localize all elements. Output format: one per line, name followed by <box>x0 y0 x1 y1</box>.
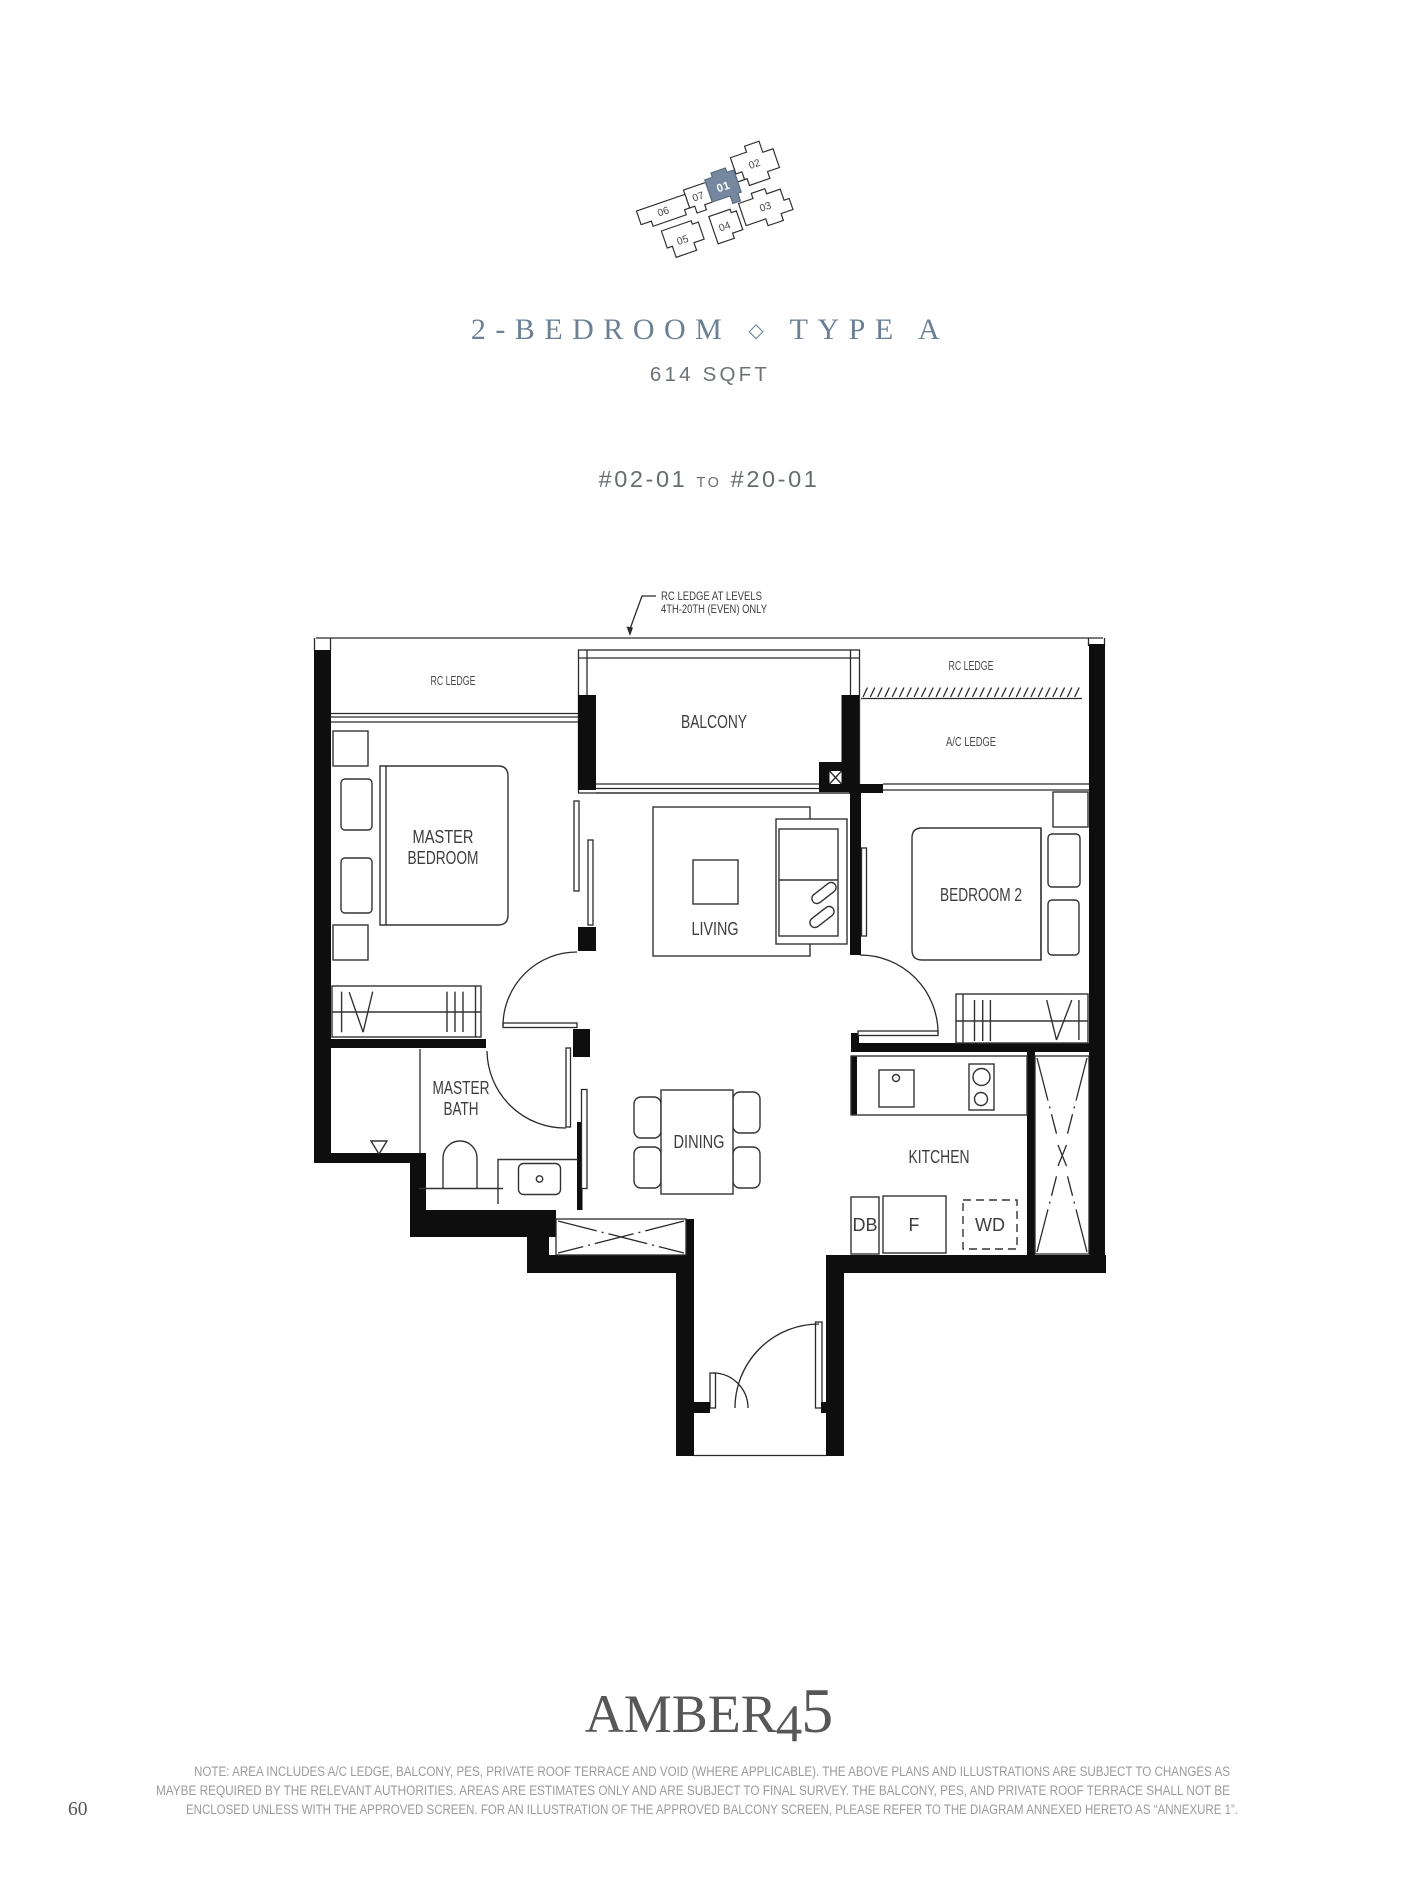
svg-text:60: 60 <box>68 1799 88 1820</box>
svg-text:RC LEDGE: RC LEDGE <box>431 674 476 688</box>
svg-text:DB: DB <box>852 1215 877 1235</box>
svg-text:RC LEDGE: RC LEDGE <box>949 659 994 673</box>
svg-text:4TH-20TH (EVEN) ONLY: 4TH-20TH (EVEN) ONLY <box>661 602 767 616</box>
svg-text:BEDROOM: BEDROOM <box>408 848 479 868</box>
svg-text:614 SQFT: 614 SQFT <box>650 363 770 386</box>
svg-text:MAYBE REQUIRED BY THE RELEVANT: MAYBE REQUIRED BY THE RELEVANT AUTHORITI… <box>156 1783 1230 1798</box>
svg-text:DINING: DINING <box>674 1132 725 1152</box>
svg-text:RC LEDGE AT LEVELS: RC LEDGE AT LEVELS <box>661 589 762 603</box>
svg-text:F: F <box>909 1215 920 1235</box>
svg-text:NOTE: AREA INCLUDES A/C LEDGE,: NOTE: AREA INCLUDES A/C LEDGE, BALCONY, … <box>194 1764 1230 1779</box>
svg-text:BEDROOM 2: BEDROOM 2 <box>940 885 1022 905</box>
svg-text:MASTER: MASTER <box>413 827 474 847</box>
svg-text:BATH: BATH <box>444 1099 479 1119</box>
svg-text:BALCONY: BALCONY <box>681 712 747 732</box>
svg-text:A/C LEDGE: A/C LEDGE <box>946 735 996 749</box>
svg-text:2-BEDROOM ◇ TYPE A: 2-BEDROOM ◇ TYPE A <box>471 313 949 346</box>
svg-text:ENCLOSED UNLESS WITH THE APPRO: ENCLOSED UNLESS WITH THE APPROVED SCREEN… <box>186 1802 1238 1817</box>
svg-text:WD: WD <box>975 1215 1005 1235</box>
svg-text:LIVING: LIVING <box>692 919 739 939</box>
svg-text:MASTER: MASTER <box>433 1078 490 1098</box>
svg-text:KITCHEN: KITCHEN <box>909 1147 970 1167</box>
